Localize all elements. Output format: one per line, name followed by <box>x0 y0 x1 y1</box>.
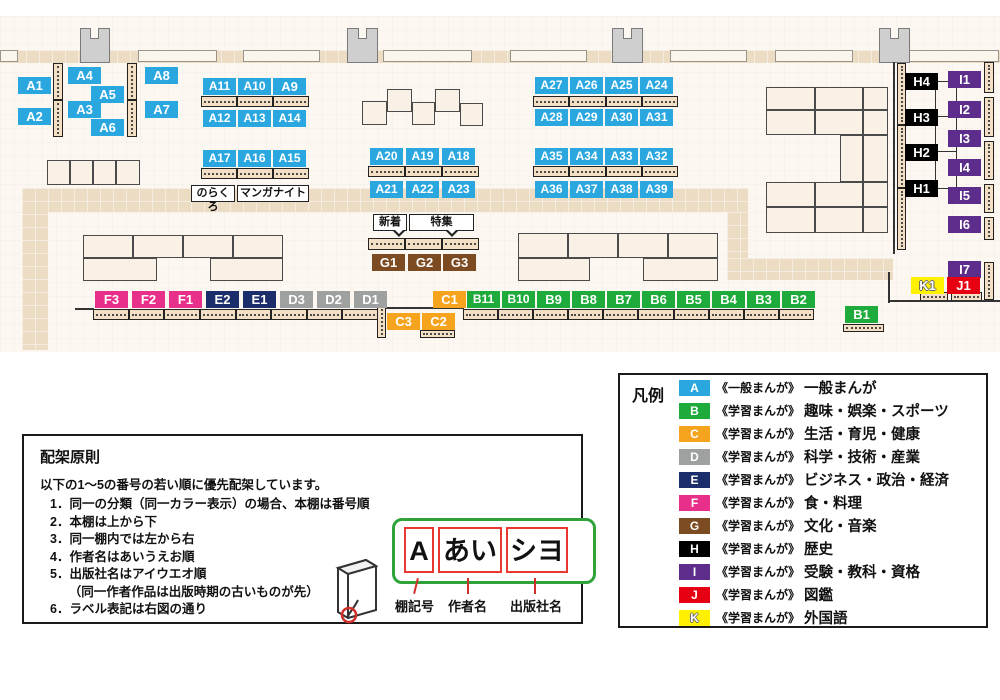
bookshelf-segment <box>164 309 200 320</box>
legend-chip-C: C <box>679 426 710 442</box>
legend-row-I: I《学習まんが》受験・教科・資格 <box>679 563 920 580</box>
shelf-label-A7: A7 <box>145 101 178 118</box>
table <box>863 87 888 110</box>
legend-row-G: G《学習まんが》文化・音楽 <box>679 517 877 534</box>
legend-chip-I: I <box>679 564 710 580</box>
legend-chip-D: D <box>679 449 710 465</box>
pointer-line <box>534 578 536 594</box>
shelf-label-B5: B5 <box>677 291 710 308</box>
bookshelf-segment <box>984 62 994 93</box>
shelf-label-A8: A8 <box>145 67 178 84</box>
table <box>210 258 283 281</box>
bookshelf <box>533 166 678 177</box>
bookshelf-segment <box>533 309 568 320</box>
shelf-label-I5: I5 <box>948 187 981 204</box>
legend-row-E: E《学習まんが》ビジネス・政治・経済 <box>679 471 949 488</box>
shelf-label-A28: A28 <box>535 109 568 126</box>
table <box>233 235 283 258</box>
bookshelf-segment <box>569 96 605 107</box>
table <box>435 89 460 112</box>
bookshelf-segment <box>307 309 343 320</box>
bookshelf-segment <box>93 309 129 320</box>
shelf-label-B7: B7 <box>607 291 640 308</box>
bookshelf-segment <box>53 63 63 100</box>
pillar-notch <box>890 28 899 39</box>
bookshelf-segment <box>984 184 994 213</box>
pillar-notch <box>90 28 99 39</box>
shelf-label-I4: I4 <box>948 159 981 176</box>
bookshelf-segment <box>984 141 994 180</box>
legend-category-tag: 《学習まんが》 <box>716 471 800 488</box>
legend-category-label: 科学・技術・産業 <box>804 446 920 467</box>
shelf-label-A30: A30 <box>605 109 638 126</box>
legend-row-K: K《学習まんが》外国語 <box>679 609 848 626</box>
pillar <box>879 28 910 63</box>
shelf-label-A15: A15 <box>273 150 306 167</box>
bookshelf-segment <box>129 309 165 320</box>
principles-item: 4．作者名はあいうえお順 <box>50 549 380 567</box>
table <box>863 110 888 135</box>
table <box>116 160 140 185</box>
shelf-label-I3: I3 <box>948 130 981 147</box>
legend-category-label: 食・料理 <box>804 492 862 513</box>
shelf-label-I1: I1 <box>948 71 981 88</box>
principles-item: 5．出版社名はアイウエオ順 <box>50 566 380 584</box>
shelf-label-B6: B6 <box>642 291 675 308</box>
bookshelf-segment <box>442 166 479 177</box>
bookshelf-segment <box>53 100 63 137</box>
bookshelf-segment <box>603 309 638 320</box>
bookshelf-segment <box>200 309 236 320</box>
pillar <box>80 28 110 63</box>
table <box>766 87 815 110</box>
table <box>83 235 133 258</box>
shelf-label-I2: I2 <box>948 101 981 118</box>
table <box>840 135 863 182</box>
shelf-label-A37: A37 <box>570 181 603 198</box>
wall-segment <box>775 50 853 62</box>
table <box>766 182 815 207</box>
legend-chip-G: G <box>679 518 710 534</box>
bookshelf <box>377 306 386 338</box>
table <box>618 233 668 258</box>
area-tag: マンガナイト <box>237 185 309 202</box>
bookshelf <box>201 168 309 179</box>
shelf-label-A17: A17 <box>203 150 236 167</box>
shelf-label-A27: A27 <box>535 77 568 94</box>
shelf-label-A29: A29 <box>570 109 603 126</box>
bookshelf <box>984 97 994 137</box>
principles-list: 1．同一の分類（同一カラー表示）の場合、本棚は番号順2．本棚は上から下3．同一棚… <box>50 496 380 619</box>
floor-map-page: A1A2A4A5A3A6A8A7A11A10A9A12A13A14A17A16A… <box>0 0 1000 700</box>
table <box>362 101 387 125</box>
shelf-label-A21: A21 <box>370 181 403 198</box>
publisher-box: シヨ <box>506 527 568 573</box>
legend-chip-K: K <box>679 610 710 626</box>
bookshelf-segment <box>201 96 237 107</box>
legend-category-label: 受験・教科・資格 <box>804 561 920 582</box>
shelf-label-B9: B9 <box>537 291 570 308</box>
wall-line <box>888 272 890 303</box>
bookshelf <box>368 166 479 177</box>
table <box>815 207 863 233</box>
area-tag: 特集 <box>409 214 474 231</box>
bookshelf-segment <box>674 309 709 320</box>
bookshelf-segment <box>127 63 137 100</box>
legend-category-label: 図鑑 <box>804 584 833 605</box>
legend-row-B: B《学習まんが》趣味・娯楽・スポーツ <box>679 402 949 419</box>
shelf-label-B8: B8 <box>572 291 605 308</box>
table <box>668 233 718 258</box>
bookshelf <box>533 96 678 107</box>
bookshelf-segment <box>342 309 378 320</box>
bookshelf-segment <box>368 166 405 177</box>
principles-item: 3．同一棚内では左から右 <box>50 531 380 549</box>
wall-segment <box>243 50 320 62</box>
table <box>83 258 157 281</box>
legend-panel: 凡例 A《一般まんが》一般まんがB《学習まんが》趣味・娯楽・スポーツC《学習まん… <box>618 373 988 628</box>
bookshelf <box>984 217 994 240</box>
shelf-label-A13: A13 <box>238 110 271 127</box>
wall-line <box>889 300 1000 302</box>
shelf-label-A31: A31 <box>640 109 673 126</box>
wall-segment <box>138 50 217 62</box>
pillar-notch <box>358 28 367 39</box>
shelf-label-A24: A24 <box>640 77 673 94</box>
shelf-label-A3: A3 <box>68 101 101 118</box>
legend-category-label: 趣味・娯楽・スポーツ <box>804 400 949 421</box>
bookshelf-segment <box>201 168 237 179</box>
legend-chip-B: B <box>679 403 710 419</box>
bookshelf <box>93 309 378 320</box>
pillar <box>612 28 643 63</box>
legend-category-tag: 《学習まんが》 <box>716 609 800 626</box>
shelf-label-A19: A19 <box>406 148 439 165</box>
bookshelf <box>53 63 63 137</box>
shelf-label-A34: A34 <box>570 148 603 165</box>
bookshelf-segment <box>405 166 442 177</box>
shelf-label-D1: D1 <box>354 291 387 308</box>
legend-category-tag: 《学習まんが》 <box>716 494 800 511</box>
bookshelf-segment <box>273 96 309 107</box>
shelf-label-A39: A39 <box>640 181 673 198</box>
shelf-label-D2: D2 <box>317 291 350 308</box>
pillar-notch <box>623 28 632 39</box>
wall-segment <box>0 50 18 62</box>
table <box>70 160 93 185</box>
bookshelf-segment <box>368 238 405 250</box>
shelf-label-C1: C1 <box>433 291 466 308</box>
bookshelf <box>984 62 994 93</box>
shelf-label-H4: H4 <box>905 73 938 90</box>
shelf-code-box: A <box>404 527 434 573</box>
walkway <box>727 258 893 280</box>
legend-category-label: 文化・音楽 <box>804 515 877 536</box>
floor-map: A1A2A4A5A3A6A8A7A11A10A9A12A13A14A17A16A… <box>0 0 1000 360</box>
bookshelf-segment <box>463 309 498 320</box>
bookshelf-segment <box>405 238 442 250</box>
bookshelf-segment <box>420 330 455 338</box>
bookshelf-segment <box>236 309 272 320</box>
table <box>183 235 233 258</box>
bookshelf <box>127 63 137 137</box>
shelf-code-caption: 棚記号 <box>395 596 434 615</box>
shelf-label-A26: A26 <box>570 77 603 94</box>
walkway <box>22 188 48 350</box>
shelf-label-A25: A25 <box>605 77 638 94</box>
bookshelf-segment <box>779 309 814 320</box>
shelf-label-B4: B4 <box>712 291 745 308</box>
principles-item: 2．本棚は上から下 <box>50 514 380 532</box>
shelf-label-J1: J1 <box>947 277 980 294</box>
table <box>643 258 718 281</box>
shelf-label-A14: A14 <box>273 110 306 127</box>
legend-chip-H: H <box>679 541 710 557</box>
table <box>863 135 888 182</box>
bookshelf-segment <box>442 238 479 250</box>
legend-chip-J: J <box>679 587 710 603</box>
legend-category-label: ビジネス・政治・経済 <box>804 469 949 490</box>
shelf-label-E1: E1 <box>243 291 276 308</box>
shelf-label-A18: A18 <box>442 148 475 165</box>
table <box>863 182 888 207</box>
table <box>133 235 183 258</box>
shelf-label-A4: A4 <box>68 67 101 84</box>
shelf-label-H3: H3 <box>905 109 938 126</box>
shelf-label-A16: A16 <box>238 150 271 167</box>
bookshelf-segment <box>843 324 884 332</box>
principles-item: （同一作者作品は出版時期の古いものが先） <box>50 584 380 602</box>
table <box>815 87 863 110</box>
bookshelf-segment <box>533 166 569 177</box>
shelf-label-A32: A32 <box>640 148 673 165</box>
walkway <box>727 212 748 258</box>
bookshelf-segment <box>127 100 137 137</box>
shelf-label-C3: C3 <box>387 313 420 330</box>
bookshelf-segment <box>498 309 533 320</box>
shelf-label-A9: A9 <box>273 78 306 95</box>
shelf-label-F3: F3 <box>95 291 128 308</box>
shelf-label-A22: A22 <box>406 181 439 198</box>
legend-category-tag: 《学習まんが》 <box>716 425 800 442</box>
table <box>766 110 815 135</box>
legend-category-tag: 《学習まんが》 <box>716 586 800 603</box>
legend-row-A: A《一般まんが》一般まんが <box>679 379 877 396</box>
area-tag: のらくろ <box>191 185 235 202</box>
book-icon <box>332 554 384 624</box>
shelf-label-A6: A6 <box>91 119 124 136</box>
bookshelf <box>984 184 994 213</box>
wall-segment <box>903 50 999 62</box>
publisher-caption: 出版社名 <box>510 596 562 615</box>
shelf-label-B2: B2 <box>782 291 815 308</box>
shelf-label-I6: I6 <box>948 216 981 233</box>
pointer-line <box>467 578 469 594</box>
bookshelf-segment <box>273 168 309 179</box>
table <box>387 89 412 112</box>
wall-line <box>936 151 957 152</box>
legend-category-tag: 《学習まんが》 <box>716 448 800 465</box>
table <box>93 160 116 185</box>
legend-category-tag: 《一般まんが》 <box>716 379 800 396</box>
shelf-label-H2: H2 <box>905 144 938 161</box>
table <box>863 207 888 233</box>
bookshelf-segment <box>642 96 678 107</box>
bookshelf-segment <box>271 309 307 320</box>
legend-category-label: 外国語 <box>804 607 848 628</box>
wall-line <box>935 81 936 189</box>
bookshelf-segment <box>638 309 673 320</box>
bookshelf-segment <box>709 309 744 320</box>
bookshelf-segment <box>744 309 779 320</box>
wall-segment <box>670 50 747 62</box>
shelf-label-E2: E2 <box>206 291 239 308</box>
shelf-label-B3: B3 <box>747 291 780 308</box>
shelf-label-F2: F2 <box>132 291 165 308</box>
legend-chip-E: E <box>679 472 710 488</box>
legend-category-label: 歴史 <box>804 538 833 559</box>
legend-category-label: 生活・育児・健康 <box>804 423 920 444</box>
bookshelf-segment <box>642 166 678 177</box>
legend-title: 凡例 <box>632 382 664 406</box>
shelf-label-K1: K1 <box>911 277 944 294</box>
wall-segment <box>383 50 472 62</box>
table <box>460 103 483 126</box>
bookshelf-segment <box>377 306 386 338</box>
legend-category-tag: 《学習まんが》 <box>716 540 800 557</box>
bookshelf <box>463 309 814 320</box>
shelf-label-A35: A35 <box>535 148 568 165</box>
shelf-label-A11: A11 <box>203 78 236 95</box>
bookshelf <box>843 324 884 332</box>
shelf-label-A12: A12 <box>203 110 236 127</box>
shelf-label-B11: B11 <box>467 291 500 308</box>
table <box>518 233 568 258</box>
shelf-label-A1: A1 <box>18 77 51 94</box>
area-tag: 新着 <box>373 214 407 231</box>
shelf-label-D3: D3 <box>280 291 313 308</box>
legend-category-label: 一般まんが <box>804 377 877 398</box>
shelf-label-A10: A10 <box>238 78 271 95</box>
legend-row-D: D《学習まんが》科学・技術・産業 <box>679 448 920 465</box>
table <box>518 258 590 281</box>
shelf-label-H1: H1 <box>905 180 938 197</box>
table <box>412 102 435 125</box>
bookshelf-segment <box>569 166 605 177</box>
wall-segment <box>510 50 587 62</box>
shelf-label-G1: G1 <box>372 254 405 271</box>
table <box>568 233 618 258</box>
bookshelf-segment <box>984 262 994 300</box>
legend-chip-F: F <box>679 495 710 511</box>
bookshelf-segment <box>897 188 906 250</box>
bookshelf-segment <box>237 168 273 179</box>
wall-line <box>893 62 895 254</box>
shelf-label-B1: B1 <box>845 306 878 323</box>
bookshelf-segment <box>984 217 994 240</box>
bookshelf-segment <box>237 96 273 107</box>
shelf-label-A36: A36 <box>535 181 568 198</box>
pillar <box>347 28 378 63</box>
bookshelf-segment <box>533 96 569 107</box>
author-caption: 作者名 <box>448 596 487 615</box>
bookshelf-segment <box>606 96 642 107</box>
bookshelf-segment <box>606 166 642 177</box>
wall-line <box>75 308 94 310</box>
bookshelf-segment <box>568 309 603 320</box>
shelf-label-C2: C2 <box>422 313 455 330</box>
table <box>815 182 863 207</box>
legend-row-H: H《学習まんが》歴史 <box>679 540 833 557</box>
shelf-label-G2: G2 <box>408 254 441 271</box>
shelf-label-A38: A38 <box>605 181 638 198</box>
shelf-label-G3: G3 <box>443 254 476 271</box>
principles-item: 1．同一の分類（同一カラー表示）の場合、本棚は番号順 <box>50 496 380 514</box>
shelving-principles-panel: 配架原則 以下の1～5の番号の若い順に優先配架しています。 1．同一の分類（同一… <box>22 434 583 624</box>
principles-title: 配架原則 <box>40 446 100 467</box>
table <box>815 110 863 135</box>
legend-row-C: C《学習まんが》生活・育児・健康 <box>679 425 920 442</box>
legend-chip-A: A <box>679 380 710 396</box>
principles-intro: 以下の1～5の番号の若い順に優先配架しています。 <box>40 474 327 493</box>
bookshelf <box>201 96 309 107</box>
shelf-label-B10: B10 <box>502 291 535 308</box>
bookshelf <box>984 262 994 300</box>
principles-item: 6．ラベル表記は右図の通り <box>50 601 380 619</box>
shelf-label-A20: A20 <box>370 148 403 165</box>
label-plate: A あい シヨ <box>392 518 596 584</box>
bookshelf <box>368 238 479 250</box>
table <box>766 207 815 233</box>
shelf-label-A23: A23 <box>442 181 475 198</box>
legend-category-tag: 《学習まんが》 <box>716 402 800 419</box>
author-box: あい <box>438 527 502 573</box>
bookshelf <box>984 141 994 180</box>
bookshelf-segment <box>984 97 994 137</box>
legend-category-tag: 《学習まんが》 <box>716 517 800 534</box>
table <box>47 160 70 185</box>
shelf-label-I7: I7 <box>948 261 981 278</box>
legend-row-J: J《学習まんが》図鑑 <box>679 586 833 603</box>
bookshelf <box>420 330 455 338</box>
legend-row-F: F《学習まんが》食・料理 <box>679 494 862 511</box>
legend-category-tag: 《学習まんが》 <box>716 563 800 580</box>
shelf-label-A33: A33 <box>605 148 638 165</box>
shelf-label-A2: A2 <box>18 108 51 125</box>
shelf-label-F1: F1 <box>169 291 202 308</box>
